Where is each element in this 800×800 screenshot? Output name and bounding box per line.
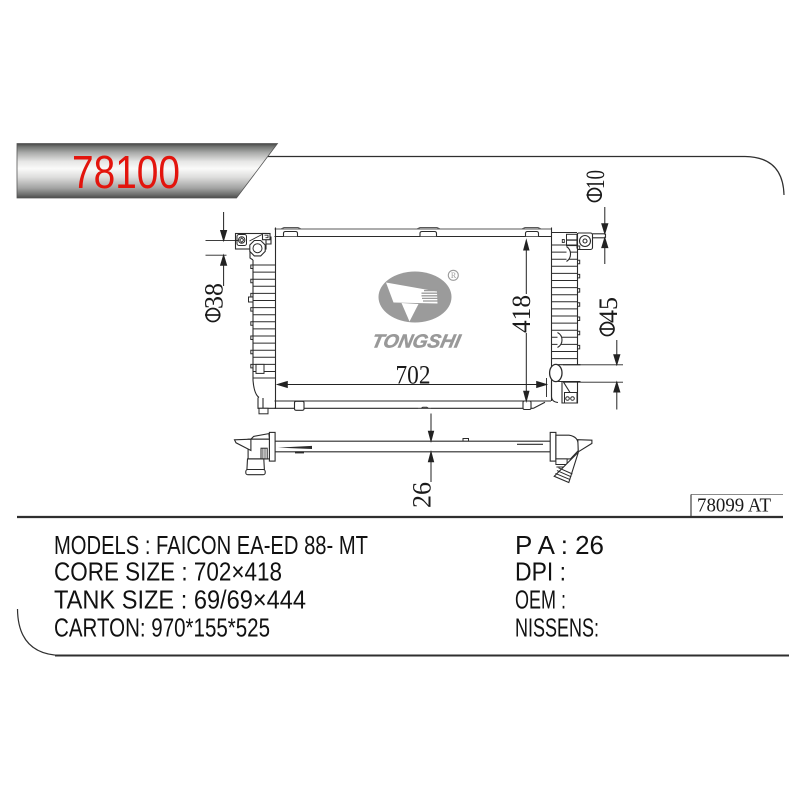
svg-text:DPI :: DPI : <box>515 556 566 586</box>
svg-text:702: 702 <box>396 361 431 390</box>
svg-text:45: 45 <box>594 297 623 323</box>
svg-text:78100: 78100 <box>72 146 180 198</box>
svg-text:TANK SIZE : 69/69×444: TANK SIZE : 69/69×444 <box>54 585 306 615</box>
svg-text:418: 418 <box>507 295 536 333</box>
svg-text:R: R <box>451 271 457 280</box>
svg-text:NISSENS:: NISSENS: <box>515 613 599 643</box>
svg-text:26: 26 <box>408 482 437 508</box>
svg-text:OEM :: OEM : <box>515 585 566 615</box>
svg-text:TONGSHI: TONGSHI <box>370 332 463 353</box>
svg-text:38: 38 <box>200 283 229 309</box>
svg-text:10: 10 <box>581 170 610 189</box>
svg-text:78099 AT: 78099 AT <box>697 495 771 517</box>
svg-text:CARTON: 970*155*525: CARTON: 970*155*525 <box>54 613 270 643</box>
svg-text:CORE SIZE : 702×418: CORE SIZE : 702×418 <box>54 556 282 586</box>
